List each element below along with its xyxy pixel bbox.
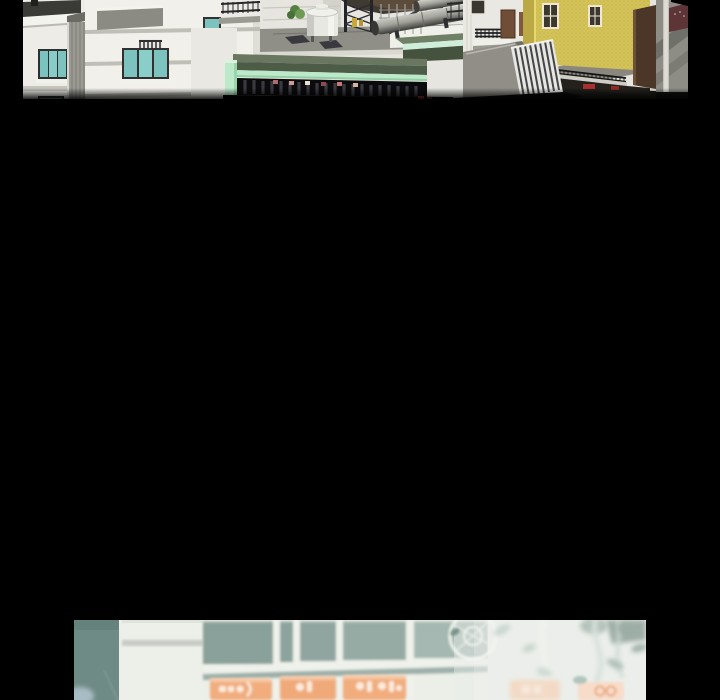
maroon-sign (669, 3, 688, 32)
cityscape-render (23, 0, 688, 103)
white-frame-column (119, 620, 203, 700)
panel-bottom-fade (23, 88, 688, 99)
panel-gutter (0, 103, 720, 620)
comic-panel-cityscape[interactable]: 3D architectural render of a city block … (23, 0, 688, 103)
brown-door (501, 10, 515, 38)
webtoon-reader-viewport: 3D architectural render of a city block … (0, 0, 720, 700)
orange-sign-row (210, 675, 406, 700)
teal-window-wide (120, 48, 171, 83)
window (542, 3, 559, 29)
comic-panel-storefront[interactable]: Blurred illustrated storefront: a grid o… (74, 620, 646, 700)
storefront-illustration (74, 620, 646, 700)
left-glass-pane (74, 620, 122, 700)
washed-right-area (449, 620, 646, 700)
orange-sign (343, 675, 406, 700)
orange-sign (210, 678, 272, 700)
window (471, 0, 485, 14)
roof-parapet-railing (219, 0, 260, 24)
orange-sign (280, 676, 336, 700)
window (588, 5, 602, 27)
